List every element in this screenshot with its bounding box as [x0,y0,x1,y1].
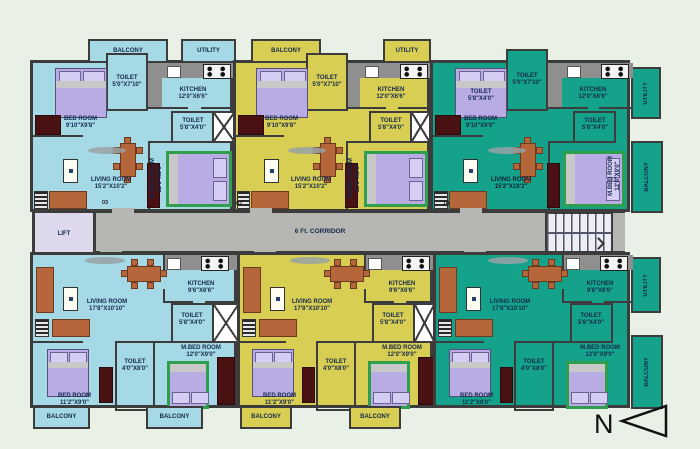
sink [567,66,581,78]
sofa [449,191,487,209]
balcony: BALCONY [33,406,90,429]
stove-icon [201,256,229,271]
utility: UTILITY [181,39,236,63]
unit-06: UTILITY BALCONY KITCHEN9'6"X6'6" LIVING … [433,252,630,408]
stairs [545,212,613,253]
unit-01: UTILITY BALCONY KITCHEN12'0"X6'6" TOILET… [430,60,630,212]
wall [240,341,286,343]
sofa [455,319,493,337]
sink [167,258,181,270]
north-triangle-icon [622,406,666,436]
toilet [514,341,554,411]
door-opening [250,208,272,213]
unit-number: 03 [102,200,108,206]
wall [433,135,483,137]
toilet-label: TOILET5'8"X4'0" [565,118,625,132]
unit-05: KITCHEN9'6"X6'6" LIVING ROOM17'8"X10'10"… [237,252,433,408]
living-room-label: LIVING ROOM15'2"X10'2" [473,177,549,191]
wall [236,135,284,137]
living-room-label: LIVING ROOM15'2"X10'2" [273,177,349,191]
living-room-label: LIVING ROOM17'8"X10'10" [69,299,145,313]
wall [148,141,171,143]
rug [85,257,125,264]
kitchen-label: KITCHEN12'0"X6'6" [158,87,228,101]
wall [356,341,374,343]
stove-icon [601,64,629,79]
master-bed [368,361,410,409]
master-bedroom-label: M.BED ROOM12'0"X9'0" [560,345,640,359]
wall [548,141,575,143]
door-opening [460,208,482,213]
wall [554,341,572,343]
toilet-label: TOILET4'0"X8'0" [105,359,165,373]
kitchen-label: KITCHEN12'0"X6'6" [558,87,628,101]
sink [368,258,382,270]
utility: UTILITY [383,39,431,63]
wall [398,107,431,109]
wall [155,341,173,343]
wall [346,107,386,109]
wall [148,107,188,109]
sink [365,66,379,78]
sofa [251,191,289,209]
wall [599,107,633,109]
sofa [439,267,457,313]
bed [252,349,294,397]
bedroom-label: BED ROOM9'10"X9'8" [43,116,118,130]
sink [566,258,580,270]
master-bed [364,151,428,207]
bedroom-label: BED ROOM9'10"X9'8" [443,116,518,130]
bedroom-label: BED ROOM9'10"X9'8" [244,116,319,130]
unit-number: 02 [236,201,242,207]
corridor-label: 6 Ft. CORRIDOR [220,228,420,235]
toilet [316,341,356,411]
unit-02: BALCONY UTILITY KITCHEN12'0"X6'6" TOILET… [233,60,430,212]
kitchen-label: KITCHEN9'6"X6'6" [367,281,437,295]
living-room-label: LIVING ROOM17'8"X10'10" [472,299,548,313]
sofa [259,319,297,337]
floor-plan: BALCONY UTILITY KITCHEN12'0"X6'6" TOILET… [0,0,700,449]
bedroom-label: BED ROOM11'2"X9'0" [37,393,112,407]
utility: UTILITY [631,257,661,313]
utility: UTILITY [631,67,661,119]
wall [201,107,236,109]
sofa [49,191,87,209]
unit-04: KITCHEN9'6"X6'6" LIVING ROOM17'8"X10'10"… [30,252,237,408]
dining-table [121,259,167,289]
rug [288,147,326,154]
sink [167,66,181,78]
rug [290,257,330,264]
master-bedroom-label: M.BED ROOM12'0"X9'0" [608,146,622,206]
master-bedroom-label: M.BED ROOM12'0"X9'0" [348,148,362,208]
bed [449,349,491,397]
door-opening [112,208,134,213]
toilet-label: TOILET5'8"X4'0" [561,313,621,327]
dining-table [522,259,568,289]
wall [346,141,369,143]
dining-table [324,259,370,289]
north-label: N [594,409,614,439]
living-room-label: LIVING ROOM15'2"X10'2" [73,177,149,191]
stove-icon [600,256,628,271]
magazine-rack [242,319,256,337]
toilet-label: TOILET4'0"X8'0" [306,359,366,373]
lift: LIFT [32,210,96,258]
wall [33,341,83,343]
stove-icon [400,64,428,79]
wall [33,135,83,137]
bed [55,68,107,118]
balcony: BALCONY [349,406,401,429]
stove-icon [402,256,430,271]
unit-03: BALCONY UTILITY KITCHEN12'0"X6'6" TOILET… [30,60,233,212]
unit-number: 01 [444,201,450,207]
bed [256,68,308,118]
wall [548,107,588,109]
toilet [115,341,155,411]
master-bedroom-label: M.BED ROOM12'0"X9'0" [150,148,164,208]
sofa [243,267,261,313]
kitchen-label: KITCHEN12'0"X6'6" [356,87,426,101]
bedroom-label: BED ROOM11'2"X9'0" [242,393,317,407]
magazine-rack [35,319,49,337]
toilet-label: TOILET4'0"X8'0" [504,359,564,373]
balcony: BALCONY [631,141,663,213]
shaft [212,303,240,343]
magazine-rack [34,191,48,209]
shaft [410,111,431,143]
master-bed [167,361,209,409]
wall [436,341,484,343]
sofa [52,319,90,337]
rug [488,147,526,154]
kitchen-label: KITCHEN9'6"X6'6" [166,281,236,295]
living-room-label: LIVING ROOM17'8"X10'10" [274,299,350,313]
north-arrow: N [592,402,682,449]
sofa [36,267,54,313]
balcony: BALCONY [240,406,292,429]
rug [88,147,126,154]
bedroom-label: BED ROOM11'2"X9'0" [439,393,514,407]
kitchen-label: KITCHEN9'6"X6'6" [565,281,635,295]
magazine-rack [438,319,452,337]
balcony: BALCONY [146,406,203,429]
bed [47,349,89,397]
wardrobe [217,357,235,405]
rug [488,257,528,264]
wardrobe [418,357,434,405]
stove-icon [203,64,231,79]
bed-overlay-label: TOILET5'8"X4'0" [451,89,511,103]
master-bed [166,151,232,207]
